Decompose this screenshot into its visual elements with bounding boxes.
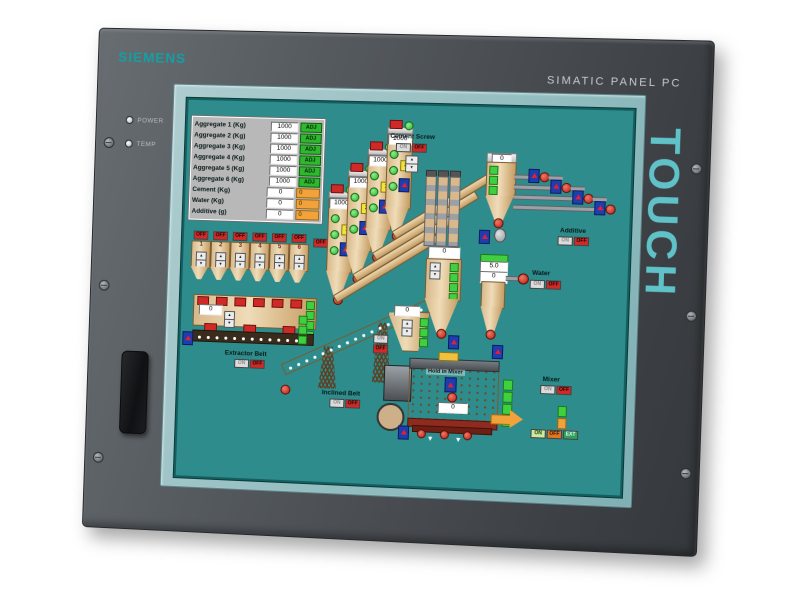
- off-button[interactable]: OFF: [556, 386, 572, 396]
- level-cell: [449, 273, 458, 282]
- mixer-value[interactable]: 0: [438, 402, 468, 414]
- additive-pump-icon: [594, 201, 606, 215]
- discharge-valve[interactable]: [440, 430, 449, 439]
- row-label: Additive (g): [191, 208, 264, 217]
- discharge-valve[interactable]: [463, 431, 472, 440]
- off-button[interactable]: OFF: [546, 280, 562, 290]
- screen-bezel: Aggregate 1 (Kg) 1000 ADJ Aggregate 2 (K…: [160, 84, 647, 509]
- decrease-button[interactable]: [224, 319, 235, 328]
- setpoint-input[interactable]: 1000: [270, 143, 298, 154]
- aggregate-bin: 4: [249, 242, 270, 270]
- bin-off-button[interactable]: OFF: [272, 233, 287, 242]
- on-button[interactable]: ON: [540, 385, 556, 395]
- transfer-hopper-controls: ON OFF: [373, 334, 389, 354]
- level-cell: [449, 283, 458, 292]
- additive-pump-icon: [528, 169, 540, 183]
- mixer-state-indicator: [557, 406, 567, 430]
- aggregate-bin: 3: [230, 242, 251, 270]
- level-cell: [298, 325, 307, 334]
- master-ext-button[interactable]: EXT: [563, 430, 579, 440]
- additive-line: [513, 205, 594, 213]
- photo-background: SIEMENS SIMATIC PANEL PC TOUCH POWER TEM…: [0, 0, 800, 600]
- weigher-valve[interactable]: [493, 218, 503, 228]
- feeder-motor-icon: [448, 335, 460, 349]
- discharge-ball: [494, 228, 507, 242]
- bin-cone: [210, 267, 228, 280]
- adjust-button[interactable]: ADJ: [298, 177, 320, 188]
- actual-cell: 0: [296, 199, 320, 210]
- additive-label: Additive: [560, 227, 586, 235]
- actual-cell: 0: [296, 188, 320, 199]
- adjust-button[interactable]: ADJ: [300, 133, 322, 144]
- row-label: Cement (Kg): [192, 186, 265, 195]
- material-chip: [290, 299, 302, 308]
- adjust-button[interactable]: ADJ: [300, 122, 322, 133]
- decrease-button[interactable]: [405, 163, 418, 172]
- row-label: Aggregate 6 (Kg): [193, 175, 268, 184]
- silo-alarm-badge: [390, 120, 403, 129]
- bin-cone: [229, 267, 247, 280]
- water-label: Water: [532, 270, 550, 278]
- level-cell: [502, 392, 512, 403]
- row-label: Aggregate 3 (Kg): [194, 142, 269, 151]
- bin-cone: [288, 269, 306, 283]
- bin-number: 6: [297, 245, 301, 251]
- off-button[interactable]: OFF: [250, 359, 265, 369]
- discharge-valve[interactable]: [417, 429, 426, 438]
- weigher-valve[interactable]: [485, 329, 495, 339]
- screw-icon: [680, 468, 692, 480]
- feeder-motor-icon: [398, 425, 409, 439]
- model-label: SIMATIC PANEL PC: [547, 74, 682, 89]
- down-arrow-icon: ▼: [455, 437, 462, 444]
- flow-arrow-icon: [510, 410, 524, 429]
- inclined-belt-controls: ON OFF: [329, 398, 360, 408]
- additive-line: [513, 195, 572, 202]
- bin-off-button[interactable]: OFF: [213, 231, 228, 240]
- bin-number: 4: [258, 244, 261, 250]
- screw-icon: [104, 137, 115, 148]
- temp-led-label: TEMP: [136, 140, 156, 147]
- master-on-button[interactable]: ON: [530, 429, 545, 439]
- row-label: Aggregate 1 (Kg): [194, 121, 269, 130]
- aggregate-bin: 2: [210, 241, 230, 269]
- additive-pump-icon: [572, 190, 584, 204]
- temp-led: [125, 140, 133, 148]
- level-cell: [450, 263, 459, 272]
- bin-off-button[interactable]: OFF: [233, 232, 248, 241]
- cement-screw-label: Cement Screw: [390, 133, 435, 141]
- row-label: Aggregate 4 (Kg): [193, 153, 268, 162]
- on-button[interactable]: ON: [329, 398, 344, 408]
- actual-value[interactable]: 0: [267, 187, 295, 198]
- level-column: [298, 316, 308, 346]
- silo-alarm-badge: [350, 163, 363, 172]
- decrease-button[interactable]: [429, 270, 440, 279]
- bin-off-button[interactable]: OFF: [252, 232, 267, 241]
- aggregate-bin: 5: [269, 243, 290, 271]
- bin-number: 5: [278, 244, 281, 250]
- screw-icon: [93, 452, 104, 463]
- on-button[interactable]: ON: [373, 334, 388, 344]
- bin-number: 1: [199, 242, 202, 248]
- row-label: Aggregate 2 (Kg): [194, 132, 269, 141]
- state-cell-orange: [557, 418, 567, 429]
- off-button[interactable]: OFF: [574, 237, 590, 247]
- actual-value[interactable]: 0: [266, 209, 294, 220]
- level-cell: [489, 176, 498, 185]
- level-cell: [299, 316, 308, 325]
- setpoint-input[interactable]: 1000: [270, 132, 298, 143]
- bin-off-button[interactable]: OFF: [291, 234, 306, 243]
- mixer-top-chip: [438, 352, 458, 362]
- screw-icon: [99, 280, 110, 291]
- feeder-motor-icon: [398, 178, 409, 192]
- row-label: Aggregate 5 (Kg): [193, 164, 268, 173]
- water-controls: ON OFF: [530, 280, 562, 290]
- master-controls: ON OFF EXT: [530, 429, 578, 440]
- aggregate-weigher-value[interactable]: 0: [428, 246, 460, 259]
- cement-screw-controls: ON OFF: [396, 143, 427, 153]
- state-cell-green: [557, 406, 567, 417]
- bin-off-button[interactable]: OFF: [194, 231, 209, 240]
- weigher-valve[interactable]: [436, 329, 446, 339]
- level-cell: [306, 301, 315, 310]
- setpoint-input[interactable]: 1000: [269, 176, 297, 187]
- off-button[interactable]: OFF: [412, 143, 427, 152]
- additive-line: [514, 184, 551, 190]
- additive-valve[interactable]: [605, 204, 616, 214]
- power-led-label: POWER: [137, 117, 163, 125]
- feeder-motor-icon: [492, 345, 504, 359]
- additive-pump-icon: [550, 179, 562, 193]
- mixer-feed-icon: [444, 377, 457, 393]
- on-button[interactable]: ON: [530, 280, 545, 290]
- temp-led-row: TEMP: [125, 140, 156, 149]
- additive-line: [514, 174, 528, 179]
- belt-motor-icon: [182, 331, 193, 345]
- batch-setpoint-table: Aggregate 1 (Kg) 1000 ADJ Aggregate 2 (K…: [188, 116, 325, 224]
- flow-arrow-shaft: [490, 414, 510, 425]
- material-chip: [253, 298, 265, 307]
- simatic-panel-pc: SIEMENS SIMATIC PANEL PC TOUCH POWER TEM…: [82, 28, 715, 557]
- belt-tail-valve[interactable]: [280, 385, 290, 395]
- water-line: [506, 276, 518, 281]
- adjust-button[interactable]: ADJ: [299, 155, 321, 166]
- hopper-value[interactable]: 0: [199, 304, 223, 316]
- silo-alarm-badge: [331, 184, 344, 193]
- screw-icon: [686, 310, 698, 322]
- level-cell: [488, 186, 497, 195]
- power-led-row: POWER: [126, 116, 164, 125]
- transfer-hopper-value[interactable]: 0: [394, 305, 420, 317]
- water-valve[interactable]: [518, 273, 529, 284]
- actual-cell: 0: [295, 209, 319, 220]
- level-cell: [419, 338, 428, 347]
- adjust-button[interactable]: ADJ: [299, 144, 321, 155]
- silo-alarm-badge: [370, 141, 383, 150]
- adjust-button[interactable]: ADJ: [299, 166, 321, 177]
- level-column: [488, 166, 498, 196]
- level-cell: [419, 328, 428, 337]
- aggregate-bin: 6: [289, 244, 310, 273]
- master-off-button[interactable]: OFF: [547, 430, 563, 440]
- aggregate-bin: 1: [191, 240, 211, 268]
- siemens-logo: SIEMENS: [118, 49, 186, 66]
- extractor-belt-conveyor: [192, 329, 314, 346]
- material-chip: [234, 297, 246, 306]
- mixer-controls: ON OFF: [540, 385, 572, 395]
- level-cell: [298, 335, 307, 344]
- hmi-screen: Aggregate 1 (Kg) 1000 ADJ Aggregate 2 (K…: [174, 98, 636, 498]
- level-column: [448, 263, 458, 303]
- water-weigher-body: [480, 281, 505, 309]
- off-button[interactable]: OFF: [373, 344, 388, 354]
- feed-pipe: [447, 177, 460, 248]
- setpoint-input[interactable]: 1000: [271, 121, 299, 132]
- front-port-cover[interactable]: [119, 350, 149, 434]
- decrease-button[interactable]: [401, 327, 412, 336]
- on-button[interactable]: ON: [557, 236, 573, 246]
- additive-controls: ON OFF: [557, 236, 589, 246]
- setpoint-input[interactable]: 1000: [270, 154, 298, 165]
- bin-cone: [268, 269, 286, 283]
- screw-icon: [691, 163, 703, 174]
- level-cell: [489, 166, 498, 175]
- extractor-belt-controls: ON OFF: [234, 359, 265, 369]
- off-button[interactable]: OFF: [345, 399, 360, 409]
- level-column: [419, 318, 429, 348]
- level-cell: [503, 379, 513, 390]
- bin-number: 3: [239, 243, 242, 249]
- material-chip: [272, 299, 284, 308]
- bin-cone: [190, 266, 208, 279]
- down-arrow-icon: ▼: [427, 436, 434, 443]
- bin-cone: [249, 268, 267, 282]
- on-button[interactable]: ON: [396, 143, 411, 152]
- level-cell: [420, 318, 429, 327]
- inclined-belt-label: Inclined Belt: [322, 389, 361, 398]
- setpoint-input[interactable]: 1000: [269, 165, 297, 176]
- row-label: Water (Kg): [192, 197, 265, 206]
- mixer-label: Mixer: [542, 376, 559, 384]
- feeder-motor-icon: [479, 230, 491, 244]
- actual-value[interactable]: 0: [266, 198, 294, 209]
- power-led: [126, 116, 134, 124]
- bin-number: 2: [219, 242, 222, 248]
- extractor-belt-label: Extractor Belt: [225, 350, 267, 359]
- on-button[interactable]: ON: [234, 359, 249, 368]
